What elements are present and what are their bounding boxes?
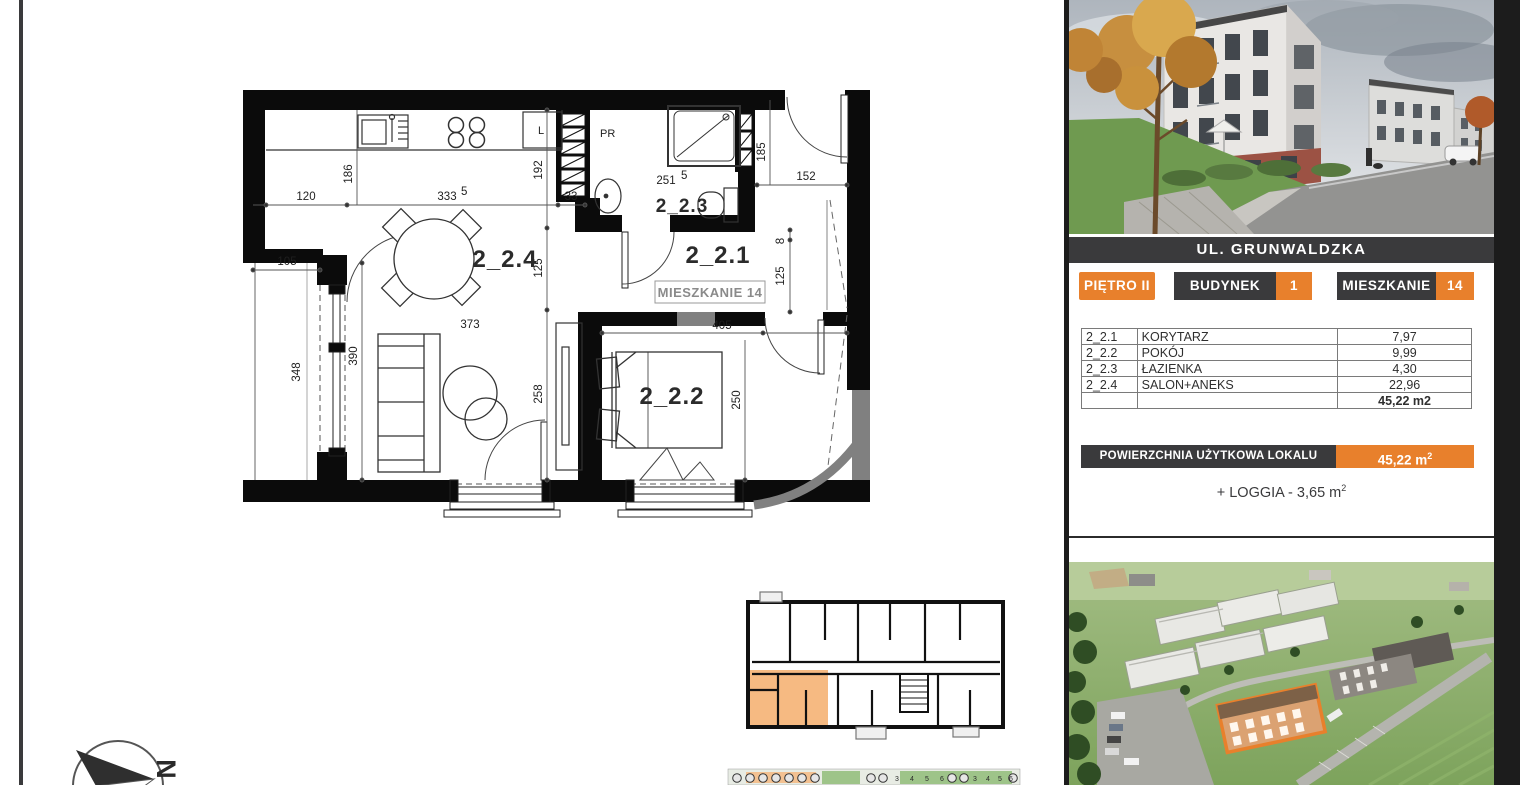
stove-icon [449,118,485,148]
mini-plan-stairs [900,674,928,712]
table-row: 2_2.4 SALON+ANEKS 22,96 [1082,377,1472,393]
section-divider [1069,536,1494,538]
strip-num-3: 6 [940,776,944,783]
building-label-badge: BUDYNEK [1174,272,1276,300]
dim-33: 33 [565,191,578,203]
dim-251: 251 [656,175,675,187]
room-area-table: 2_2.1 KORYTARZ 7,97 2_2.2 POKÓJ 9,99 2_2… [1081,328,1472,409]
apartment-number-text: MIESZKANIE 14 [658,285,763,300]
floor-badge: PIĘTRO II [1079,272,1155,300]
page: 120 333 5 33 251 5 152 105 373 405 186 1… [0,0,1520,785]
room-code: 2_2.3 [1082,361,1138,377]
building-number-badge: 1 [1276,272,1312,300]
floor-plan-drawing: 120 333 5 33 251 5 152 105 373 405 186 1… [0,0,1064,785]
room-name [1137,393,1337,409]
dim-258: 258 [533,384,545,403]
sofa-icon [378,334,440,472]
washbasin-icon [595,179,621,213]
room-label-bedroom: 2_2.2 [639,383,704,410]
usable-area-value: 45,22 m2 [1336,445,1474,468]
room-name: ŁAZIENKA [1137,361,1337,377]
room-name: KORYTARZ [1137,329,1337,345]
apartment-number-box: MIESZKANIE 14 [655,281,765,303]
shower-icon [668,106,740,166]
usable-area-label: POWIERZCHNIA UŻYTKOWA LOKALU [1081,445,1336,468]
curtain-icon [640,448,714,480]
room-code: 2_2.2 [1082,345,1138,361]
dim-373: 373 [460,319,479,331]
dim-120: 120 [296,191,315,203]
table-row: 2_2.2 POKÓJ 9,99 [1082,345,1472,361]
strip-num-5: 4 [986,776,990,783]
sidebar-frame-right [1494,0,1520,785]
site-plan-strip: 3 4 5 6 3 4 5 6 [728,769,1020,785]
usable-area-number: 45,22 m [1378,453,1428,468]
dim-251-sup: 5 [681,170,687,182]
apartment-label-badge: MIESZKANIE [1337,272,1436,300]
strip-num-0: 3 [895,776,899,783]
dim-390: 390 [348,346,360,365]
room-code [1082,393,1138,409]
dim-105: 105 [277,256,296,268]
building-render-photo [1069,0,1494,234]
street-name-bar: UL. GRUNWALDZKA [1069,237,1494,263]
dim-250: 250 [731,390,743,409]
kitchen-sink-icon [358,115,408,149]
table-row: 2_2.1 KORYTARZ 7,97 [1082,329,1472,345]
strip-num-7: 6 [1009,776,1013,783]
floor-overview-mini-plan [748,592,1003,739]
table-total-row: 45,22 m2 [1082,393,1472,409]
dim-8: 8 [775,238,787,244]
room-name: SALON+ANEKS [1137,377,1337,393]
info-sidebar: UL. GRUNWALDZKA PIĘTRO II BUDYNEK 1 MIES… [1064,0,1520,785]
room-area: 9,99 [1338,345,1472,361]
table-row: 2_2.3 ŁAZIENKA 4,30 [1082,361,1472,377]
room-code: 2_2.1 [1082,329,1138,345]
room-label-hall: 2_2.1 [685,242,750,269]
usable-area-sup: 2 [1427,451,1432,461]
room-label-salon: 2_2.4 [472,246,537,273]
apartment-number-badge: 14 [1436,272,1474,300]
dim-333: 333 [437,191,456,203]
dim-333-sup: 5 [461,186,467,198]
coffee-tables-icon [443,366,507,440]
loggia-sup: 2 [1341,483,1346,493]
strip-num-6: 5 [998,776,1002,783]
strip-num-1: 4 [910,776,914,783]
dim-125-right: 125 [775,266,787,285]
dim-348: 348 [291,362,303,381]
north-letter: N [151,759,181,779]
loggia-text: + LOGGIA - 3,65 m [1217,485,1342,501]
dim-192: 192 [533,160,545,179]
dim-186: 186 [343,164,355,183]
strip-num-4: 3 [973,776,977,783]
dining-table-icon [382,209,482,307]
fridge-label: L [538,125,544,137]
dim-185: 185 [756,142,768,161]
room-area: 7,97 [1338,329,1472,345]
room-label-bathroom: 2_2.3 [656,196,709,217]
north-arrow-icon: N [73,741,181,785]
shaft-label: PR [600,128,615,140]
room-area: 22,96 [1338,377,1472,393]
strip-num-2: 5 [925,776,929,783]
room-name: POKÓJ [1137,345,1337,361]
aerial-estate-photo [1069,562,1494,785]
dimension-labels: 120 333 5 33 251 5 152 105 373 405 186 1… [277,142,815,409]
loggia-area-text: + LOGGIA - 3,65 m2 [1069,483,1494,501]
kitchen-counter [266,110,562,150]
dim-405: 405 [712,320,731,332]
dim-152: 152 [796,171,815,183]
total-area: 45,22 m2 [1338,393,1472,409]
room-code: 2_2.4 [1082,377,1138,393]
room-area: 4,30 [1338,361,1472,377]
